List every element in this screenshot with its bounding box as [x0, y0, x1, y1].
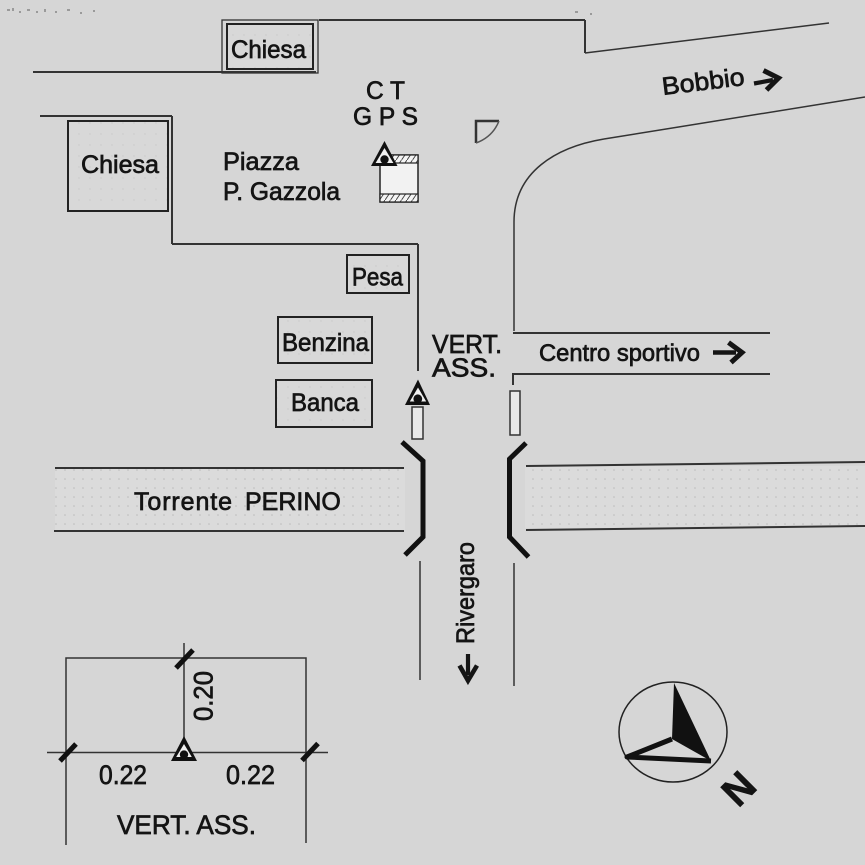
- svg-text:Torrente: Torrente: [134, 488, 233, 516]
- svg-text:ASS.: ASS.: [432, 353, 496, 383]
- svg-text:P. Gazzola: P. Gazzola: [223, 178, 340, 206]
- svg-text:G P S: G P S: [353, 103, 418, 131]
- svg-text:0.22: 0.22: [226, 760, 275, 790]
- svg-text:Banca: Banca: [291, 389, 359, 417]
- svg-text:Centro sportivo: Centro sportivo: [539, 340, 700, 367]
- svg-text:VERT. ASS.: VERT. ASS.: [117, 810, 256, 840]
- svg-text:PERINO: PERINO: [245, 488, 341, 516]
- svg-text:0.22: 0.22: [99, 760, 147, 790]
- svg-text:Chiesa: Chiesa: [81, 151, 159, 179]
- svg-text:Piazza: Piazza: [223, 148, 299, 176]
- svg-text:Rivergaro: Rivergaro: [452, 542, 480, 644]
- svg-text:C T: C T: [366, 77, 405, 105]
- svg-text:Benzina: Benzina: [282, 329, 369, 357]
- svg-text:0.20: 0.20: [189, 671, 219, 721]
- svg-text:Chiesa: Chiesa: [231, 36, 306, 64]
- svg-text:Pesa: Pesa: [352, 264, 403, 292]
